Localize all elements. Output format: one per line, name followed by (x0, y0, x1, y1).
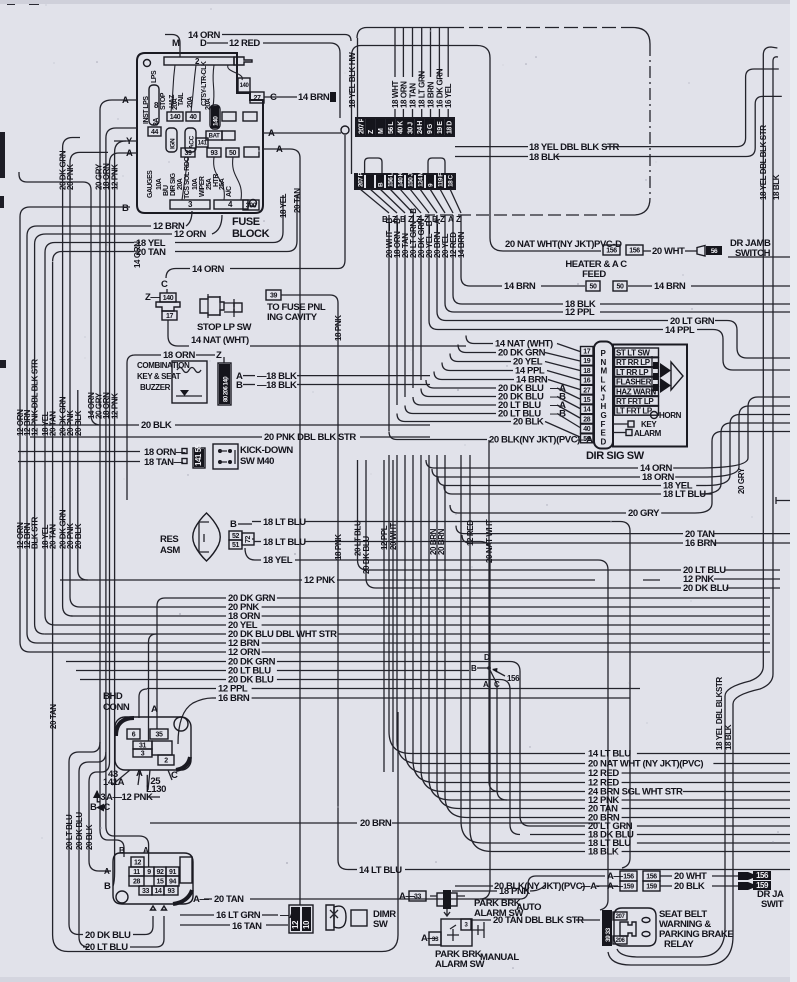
svg-text:18 LT BLU: 18 LT BLU (263, 537, 306, 548)
svg-text:93: 93 (211, 150, 218, 157)
svg-text:14 BRN: 14 BRN (654, 281, 686, 292)
svg-text:BHD: BHD (103, 691, 123, 702)
svg-text:18 LT GRN: 18 LT GRN (418, 71, 427, 108)
svg-text:LT RR LP: LT RR LP (616, 368, 649, 377)
svg-text:20 BLK: 20 BLK (674, 881, 705, 892)
svg-text:150 J: 150 J (408, 172, 415, 187)
svg-text:18 C: 18 C (448, 174, 455, 187)
svg-text:18 YEL: 18 YEL (279, 193, 288, 218)
svg-text:18 LT BLU: 18 LT BLU (663, 489, 706, 500)
svg-text:J: J (601, 393, 605, 402)
svg-text:40: 40 (190, 114, 197, 121)
svg-text:BLOCK: BLOCK (232, 228, 270, 240)
svg-text:18 BRN: 18 BRN (427, 81, 436, 108)
svg-text:12 PNK: 12 PNK (111, 393, 120, 419)
svg-text:33: 33 (414, 894, 421, 901)
svg-text:20 TAN DBL BLK STR: 20 TAN DBL BLK STR (493, 915, 584, 926)
svg-text:140: 140 (240, 83, 250, 89)
svg-text:44: 44 (151, 129, 158, 136)
svg-text:18 YEL: 18 YEL (263, 555, 293, 566)
svg-text:LPS: LPS (151, 70, 158, 83)
svg-text:18 ORN: 18 ORN (163, 350, 195, 361)
svg-text:GAUGES: GAUGES (147, 170, 154, 198)
svg-text:A—12 PNK: A—12 PNK (106, 792, 153, 803)
svg-text:140: 140 (213, 116, 220, 126)
svg-text:M: M (172, 38, 180, 49)
svg-text:RES: RES (160, 534, 178, 545)
svg-text:20A: 20A (172, 98, 179, 110)
svg-text:18 TAN: 18 TAN (409, 83, 418, 108)
svg-text:72: 72 (245, 536, 252, 543)
svg-text:C: C (161, 279, 168, 290)
svg-text:6: 6 (132, 732, 136, 739)
svg-text:18: 18 (583, 368, 590, 375)
svg-text:16 BRN: 16 BRN (218, 693, 250, 704)
svg-text:FUSE: FUSE (232, 216, 260, 228)
svg-text:C: C (171, 770, 178, 781)
svg-text:B: B (104, 881, 111, 892)
svg-text:25A: 25A (206, 178, 213, 190)
svg-text:156: 156 (623, 874, 634, 881)
svg-text:15: 15 (583, 397, 590, 404)
svg-text:50: 50 (229, 150, 236, 157)
svg-text:BLK STR: BLK STR (31, 517, 40, 549)
svg-text:M: M (601, 367, 608, 376)
svg-text:33: 33 (432, 936, 439, 943)
svg-text:20 BLK: 20 BLK (141, 420, 172, 431)
svg-text:BUZZER: BUZZER (140, 383, 171, 392)
svg-text:18 ORN: 18 ORN (102, 163, 111, 190)
svg-text:A: A (448, 215, 454, 224)
svg-text:TAIL: TAIL (178, 92, 185, 106)
svg-text:B: B (471, 664, 477, 673)
svg-text:39 33: 39 33 (605, 927, 612, 942)
svg-text:207: 207 (616, 914, 626, 920)
svg-text:141: 141 (198, 141, 208, 147)
svg-text:14 BRN: 14 BRN (504, 281, 536, 292)
svg-text:119 F: 119 F (438, 173, 445, 187)
svg-text:156: 156 (756, 871, 769, 880)
svg-text:140: 140 (163, 295, 174, 302)
svg-text:B: B (236, 380, 243, 391)
svg-text:33: 33 (142, 888, 149, 895)
svg-text:Z: Z (216, 350, 222, 361)
svg-text:94: 94 (169, 879, 176, 886)
svg-text:14 LT BLU: 14 LT BLU (359, 865, 402, 876)
svg-text:14 ORN: 14 ORN (192, 264, 224, 275)
svg-text:14 PPL: 14 PPL (665, 325, 695, 336)
svg-text:A/C: A/C (226, 186, 233, 197)
svg-text:18 YEL BLK HW: 18 YEL BLK HW (348, 52, 357, 108)
svg-text:14 BRN: 14 BRN (298, 92, 330, 103)
svg-text:14: 14 (155, 888, 162, 895)
svg-text:16 YEL: 16 YEL (444, 83, 453, 108)
svg-text:3: 3 (141, 751, 145, 758)
svg-text:12 RED: 12 RED (229, 38, 260, 49)
svg-text:141 55: 141 55 (194, 443, 203, 466)
svg-text:STOP LP SW: STOP LP SW (197, 322, 252, 333)
svg-text:B/U: B/U (163, 185, 170, 196)
svg-text:40 K: 40 K (398, 121, 405, 134)
svg-text:300: 300 (246, 203, 257, 210)
svg-text:12 PPL: 12 PPL (380, 525, 389, 550)
svg-text:39: 39 (270, 293, 277, 300)
svg-text:D: D (601, 438, 607, 447)
svg-text:M: M (378, 128, 385, 134)
svg-text:12 PNK: 12 PNK (304, 575, 335, 586)
svg-text:20 BLK: 20 BLK (74, 523, 83, 549)
svg-text:207 P: 207 P (358, 117, 365, 134)
svg-text:18 BLK: 18 BLK (588, 847, 619, 858)
svg-text:16 TAN: 16 TAN (232, 921, 262, 932)
svg-text:27: 27 (254, 95, 261, 102)
svg-text:3A: 3A (153, 118, 160, 126)
svg-text:18 YEL DBL BLK STR: 18 YEL DBL BLK STR (759, 125, 768, 200)
svg-text:19: 19 (583, 358, 590, 365)
svg-text:F: F (601, 420, 606, 429)
svg-text:KEY & SEAT: KEY & SEAT (137, 372, 181, 381)
svg-text:20 WHT: 20 WHT (652, 246, 685, 257)
svg-text:91: 91 (169, 869, 176, 876)
svg-text:140 K: 140 K (398, 171, 405, 187)
svg-text:93: 93 (168, 888, 175, 895)
svg-text:20 DK BLU: 20 DK BLU (85, 930, 131, 941)
svg-text:16: 16 (583, 378, 590, 385)
svg-text:156: 156 (507, 674, 520, 683)
svg-text:SW M40: SW M40 (240, 456, 274, 467)
svg-text:MANUAL: MANUAL (480, 952, 519, 963)
svg-text:12 PPL: 12 PPL (565, 307, 595, 318)
svg-text:18 D: 18 D (447, 121, 454, 134)
svg-text:159: 159 (646, 884, 657, 891)
svg-text:RT FRT LP: RT FRT LP (616, 397, 654, 406)
svg-text:16 BRN: 16 BRN (685, 538, 717, 549)
svg-text:K: K (601, 384, 607, 393)
svg-text:9 G: 9 G (427, 123, 434, 134)
svg-text:207 P: 207 P (358, 171, 365, 187)
svg-text:20 DK BLU: 20 DK BLU (683, 583, 729, 594)
svg-text:12: 12 (291, 920, 300, 929)
svg-text:ALARM SW: ALARM SW (435, 959, 484, 970)
svg-text:20 TAN: 20 TAN (293, 188, 302, 213)
svg-text:2: 2 (164, 758, 168, 765)
svg-text:80 206 140: 80 206 140 (224, 376, 230, 402)
svg-text:20 BRN: 20 BRN (360, 818, 392, 829)
svg-text:39: 39 (185, 150, 192, 157)
svg-text:11: 11 (133, 869, 140, 876)
svg-text:20 TAN: 20 TAN (49, 704, 58, 729)
svg-text:B: B (230, 519, 237, 530)
svg-text:20 LT BLU: 20 LT BLU (65, 814, 74, 850)
svg-text:140: 140 (170, 114, 181, 121)
svg-text:50: 50 (617, 284, 624, 291)
svg-text:10A: 10A (156, 178, 163, 190)
svg-text:B◀C: B◀C (90, 802, 110, 813)
svg-text:ACC: ACC (189, 135, 196, 149)
svg-text:A: A (136, 768, 143, 779)
svg-text:56 L: 56 L (388, 121, 395, 134)
svg-text:BAT: BAT (209, 134, 220, 140)
svg-text:35: 35 (156, 732, 163, 739)
svg-text:20 BLK(NY JKT)(PVC): 20 BLK(NY JKT)(PVC) (489, 435, 580, 446)
svg-text:18 ORN: 18 ORN (102, 392, 111, 419)
svg-text:CONN: CONN (103, 702, 130, 713)
svg-text:KEY: KEY (641, 420, 657, 429)
svg-text:—18 BLK: —18 BLK (257, 380, 297, 391)
svg-text:141A: 141A (103, 777, 125, 788)
svg-text:30 J: 30 J (407, 122, 414, 134)
svg-text:DIR SIG: DIR SIG (170, 172, 177, 196)
svg-text:20A: 20A (177, 178, 184, 190)
svg-text:24 H: 24 H (417, 121, 424, 134)
svg-text:DIR SIG SW: DIR SIG SW (586, 450, 645, 462)
svg-text:159: 159 (623, 884, 634, 891)
svg-text:206: 206 (616, 938, 626, 944)
svg-text:14 BRN: 14 BRN (457, 231, 466, 258)
svg-text:17: 17 (583, 349, 590, 356)
svg-text:16 DK GRN: 16 DK GRN (435, 68, 444, 108)
svg-text:156: 156 (629, 248, 640, 255)
svg-text:56: 56 (711, 248, 718, 255)
svg-text:D: D (200, 38, 207, 49)
svg-text:9: 9 (147, 869, 151, 876)
svg-text:50: 50 (590, 284, 597, 291)
svg-text:16 LT GRN: 16 LT GRN (216, 910, 261, 921)
svg-text:14: 14 (583, 407, 590, 414)
svg-text:20 LT BLU: 20 LT BLU (85, 942, 128, 953)
svg-text:19 E: 19 E (437, 121, 444, 134)
svg-text:SWIT: SWIT (761, 899, 784, 910)
svg-text:17: 17 (166, 313, 173, 320)
svg-text:20 GRY: 20 GRY (628, 508, 660, 519)
svg-text:14 NAT (WHT): 14 NAT (WHT) (191, 335, 249, 346)
svg-text:ASM: ASM (160, 545, 180, 556)
svg-text:18 LT BLU: 18 LT BLU (263, 517, 306, 528)
svg-text:28: 28 (583, 416, 590, 423)
svg-text:52: 52 (232, 533, 239, 540)
svg-text:25A: 25A (219, 178, 226, 190)
svg-text:N: N (601, 358, 607, 367)
svg-text:124 M: 124 M (418, 171, 425, 187)
svg-text:40: 40 (583, 426, 590, 433)
svg-text:A: A (151, 704, 158, 715)
svg-text:STOP: STOP (160, 92, 167, 110)
svg-text:TCS SOL RDO: TCS SOL RDO (184, 156, 191, 199)
svg-text:SW: SW (373, 919, 388, 930)
svg-text:12 PNK: 12 PNK (111, 164, 120, 190)
svg-text:28: 28 (133, 879, 140, 886)
svg-text:RELAY: RELAY (664, 939, 694, 950)
svg-text:INST LPS: INST LPS (143, 96, 150, 124)
svg-text:G: G (601, 411, 607, 420)
svg-text:ING CAVITY: ING CAVITY (267, 312, 318, 323)
svg-text:156: 156 (646, 874, 657, 881)
svg-text:20A: 20A (205, 98, 212, 110)
svg-text:156 L: 156 L (388, 172, 395, 187)
svg-text:10: 10 (302, 920, 311, 929)
svg-text:14 ORN: 14 ORN (133, 241, 142, 268)
svg-text:20 BLK(NY JKT)(PVC): 20 BLK(NY JKT)(PVC) (494, 881, 585, 892)
svg-text:20 TAN: 20 TAN (49, 524, 58, 549)
svg-text:51: 51 (232, 542, 239, 549)
svg-text:15: 15 (157, 879, 164, 886)
svg-text:20 BLK: 20 BLK (74, 410, 83, 436)
svg-text:27: 27 (583, 387, 590, 394)
svg-text:Z: Z (456, 215, 461, 224)
svg-text:20 BLK: 20 BLK (85, 824, 94, 850)
svg-text:20A: 20A (187, 96, 194, 108)
svg-text:HORN: HORN (659, 411, 682, 420)
svg-text:A: A (483, 680, 489, 689)
svg-text:ST LT SW: ST LT SW (616, 349, 650, 358)
svg-text:B: B (122, 203, 129, 214)
svg-text:WIPER: WIPER (199, 176, 206, 197)
svg-text:156: 156 (606, 248, 617, 255)
svg-text:18 TAN—: 18 TAN— (144, 457, 184, 468)
svg-text:10A: 10A (192, 178, 199, 190)
svg-text:FLASHER: FLASHER (616, 378, 652, 387)
svg-text:RT RR LP: RT RR LP (616, 358, 651, 367)
svg-text:18 BLK: 18 BLK (772, 174, 781, 200)
svg-text:12: 12 (134, 860, 141, 867)
svg-text:20 BLK: 20 BLK (513, 417, 544, 428)
svg-text:59: 59 (583, 436, 590, 443)
svg-text:AUTO: AUTO (516, 902, 541, 913)
svg-text:H: H (601, 402, 607, 411)
svg-text:L: L (601, 376, 606, 385)
svg-text:20 PNK DBL BLK STR: 20 PNK DBL BLK STR (264, 432, 356, 443)
svg-text:20 DK BLU: 20 DK BLU (75, 812, 84, 850)
svg-text:IGN: IGN (170, 138, 177, 149)
svg-text:20 TAN: 20 TAN (214, 894, 244, 905)
svg-text:ALARM: ALARM (634, 429, 662, 438)
svg-text:20 TAN: 20 TAN (49, 411, 58, 436)
svg-text:FEED: FEED (582, 269, 606, 280)
svg-text:HAZ WARN: HAZ WARN (616, 387, 657, 396)
svg-text:18 BLK: 18 BLK (529, 152, 560, 163)
svg-text:18 ORN: 18 ORN (399, 81, 408, 108)
svg-text:18 PNK: 18 PNK (334, 534, 343, 560)
svg-text:20 GRY: 20 GRY (737, 467, 746, 494)
svg-text:92: 92 (157, 869, 164, 876)
svg-text:KICK-DOWN: KICK-DOWN (240, 445, 293, 456)
svg-text:18 BLK: 18 BLK (724, 724, 733, 750)
svg-text:12 ORN: 12 ORN (174, 229, 206, 240)
svg-text:20 DK BLU: 20 DK BLU (362, 536, 371, 574)
svg-text:A: A (104, 867, 110, 876)
svg-text:18 YEL DBL BLKSTR: 18 YEL DBL BLKSTR (715, 677, 724, 750)
